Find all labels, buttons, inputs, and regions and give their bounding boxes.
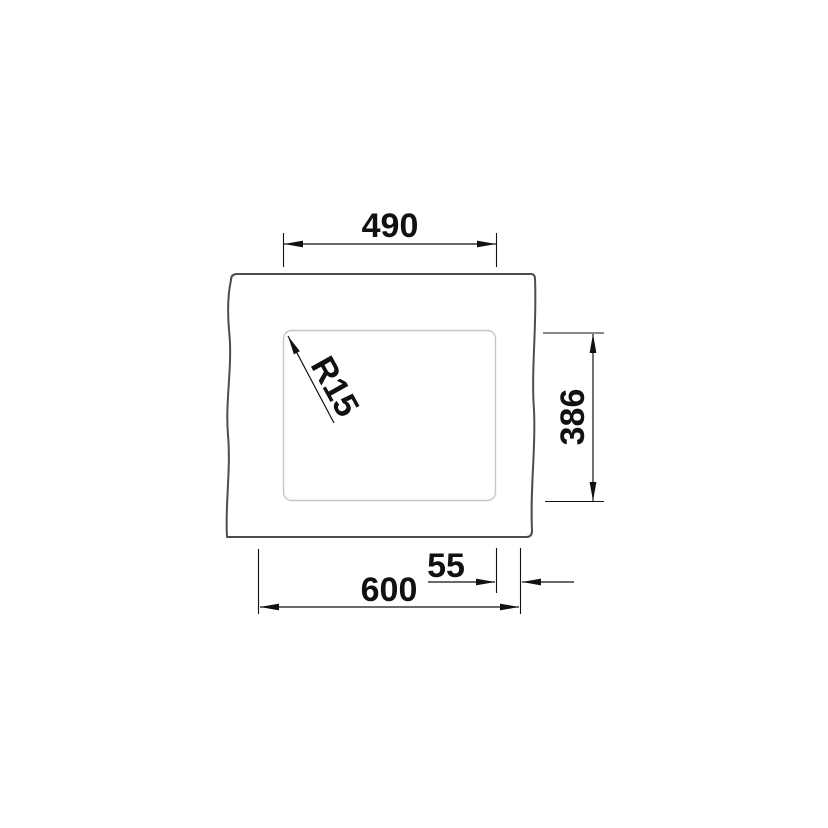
dim-inner-height: 386 — [543, 333, 604, 502]
sink-outline-path — [227, 274, 536, 537]
dim-right-offset: 55 — [427, 547, 574, 585]
sink-dimension-drawing: R15 490 386 55 — [0, 0, 828, 828]
dim-bottom-group: 55 600 — [259, 547, 575, 614]
dim-overall-width: 600 — [260, 571, 519, 609]
radius-callout: R15 — [288, 336, 366, 423]
bowl-outline — [284, 331, 496, 501]
dim-inner-width: 490 — [284, 207, 497, 267]
dim-inner-height-label: 386 — [554, 389, 592, 446]
dim-overall-width-label: 600 — [361, 571, 418, 609]
dim-inner-width-label: 490 — [362, 207, 419, 245]
drawing-svg: R15 490 386 55 — [0, 0, 828, 828]
bowl-outline-rect — [284, 331, 496, 501]
sink-outline — [227, 274, 536, 537]
radius-label: R15 — [303, 350, 366, 423]
dim-right-offset-label: 55 — [427, 547, 465, 585]
